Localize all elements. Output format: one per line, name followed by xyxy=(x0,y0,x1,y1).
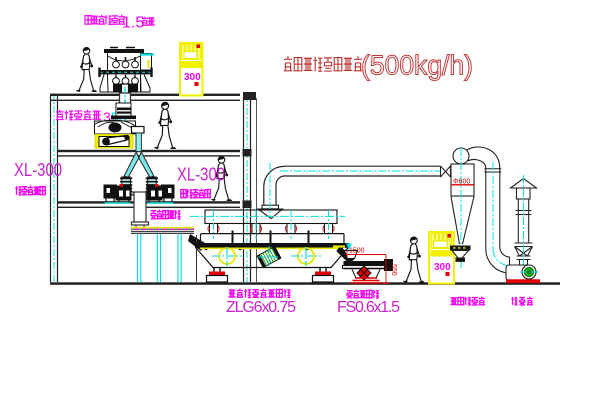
svg-text:1500: 1500 xyxy=(349,248,365,255)
svg-text:ZLG6x0.75: ZLG6x0.75 xyxy=(226,299,296,316)
svg-text:550: 550 xyxy=(390,264,397,276)
svg-text:XL-300: XL-300 xyxy=(177,165,225,185)
svg-text:(500kg/h): (500kg/h) xyxy=(361,50,473,81)
svg-text:300: 300 xyxy=(434,262,451,273)
svg-text:1.5: 1.5 xyxy=(122,15,144,32)
svg-text:Φ600: Φ600 xyxy=(453,179,470,186)
svg-text:XL-300: XL-300 xyxy=(14,160,62,180)
svg-text:FS0.6x1.5: FS0.6x1.5 xyxy=(337,299,400,316)
svg-text:300: 300 xyxy=(184,72,201,83)
